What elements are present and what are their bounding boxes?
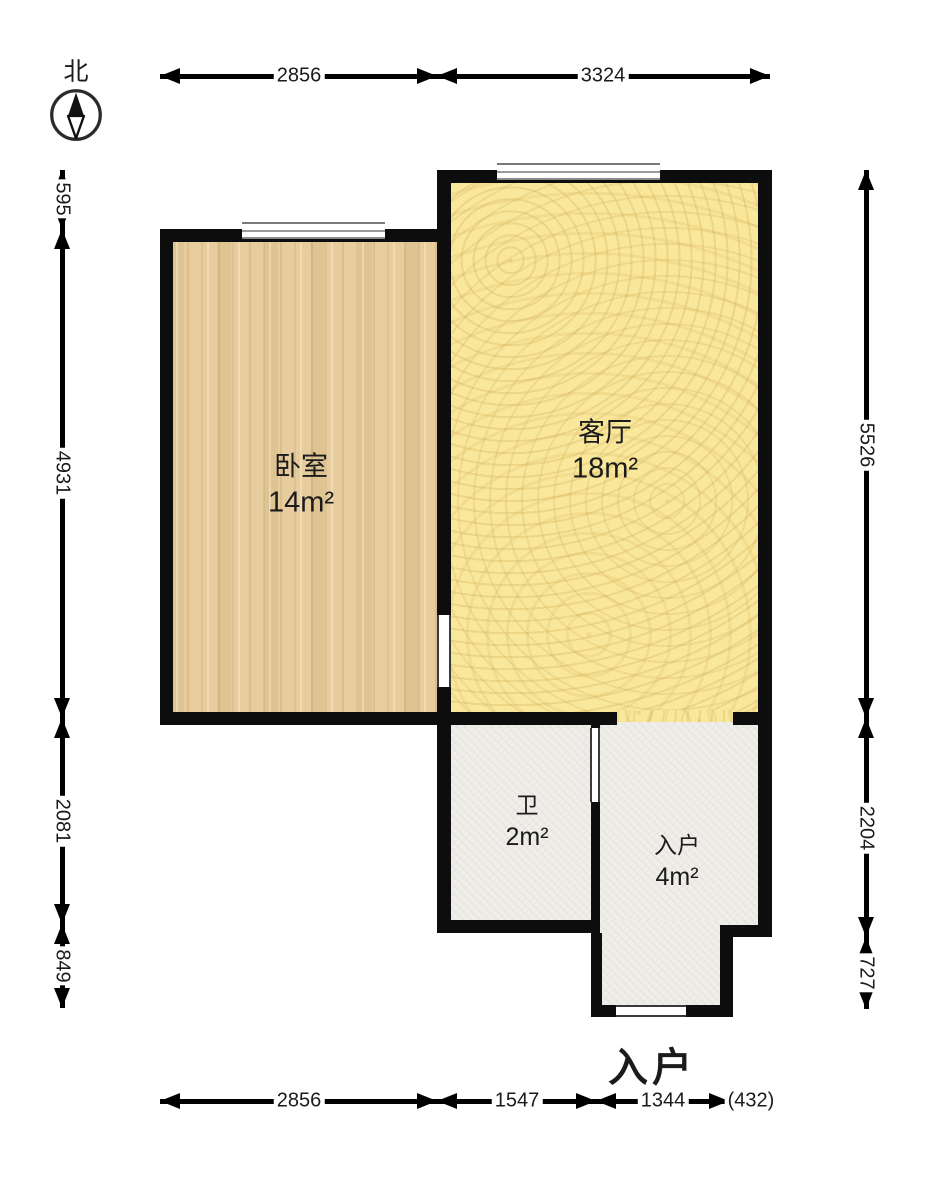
entry-room-name: 入户 (654, 831, 700, 861)
bathroom-door-opening (590, 728, 600, 802)
bedroom-door-opening (437, 615, 451, 687)
bedroom-label: 卧室 14m² (268, 450, 334, 523)
dim-tick (54, 229, 70, 249)
dim-tick (596, 1093, 616, 1109)
bathroom-name: 卫 (505, 791, 548, 821)
north-label: 北 (63, 52, 88, 88)
dim-tick (858, 718, 874, 738)
wall-right-outer (758, 170, 772, 937)
bedroom-name: 卧室 (268, 450, 334, 485)
dim-tick (54, 698, 70, 718)
dim-arrow-up (858, 170, 874, 190)
dim-arrow-right (750, 68, 770, 84)
dim-tick (858, 917, 874, 937)
dimension-label: 1547 (492, 1090, 543, 1113)
entry-floor-upper (597, 722, 761, 928)
dimension-label: 2204 (855, 803, 878, 854)
dim-tick (437, 68, 457, 84)
dim-tick (858, 698, 874, 718)
dimension-label: 3324 (578, 65, 629, 88)
entry-floor-lower (597, 920, 723, 1008)
entry-room-area: 4m² (654, 861, 700, 894)
bathroom-label: 卫 2m² (505, 791, 548, 853)
wall-bathroom-left (437, 712, 451, 933)
dim-tick (437, 1093, 457, 1109)
dim-tick (417, 1093, 437, 1109)
bathroom-area: 2m² (505, 821, 548, 854)
dimension-label: 849 (51, 946, 74, 985)
wall-bedroom-bottom (160, 712, 450, 725)
wall-bedroom-left (160, 229, 173, 725)
entry-room-label: 入户 4m² (654, 831, 700, 893)
bedroom-window (242, 222, 385, 239)
dim-tick (417, 68, 437, 84)
bedroom-area: 14m² (268, 485, 334, 523)
wall-entry-notch-vertical (720, 925, 733, 1017)
wall-living-bottom-right (733, 712, 772, 725)
dimension-label: 2856 (274, 1090, 325, 1113)
dimension-label: 4931 (51, 448, 74, 499)
dim-tick (54, 904, 70, 924)
wall-living-bottom-left (437, 712, 617, 725)
wall-bathroom-bottom (437, 920, 600, 933)
dim-line (60, 170, 65, 1008)
dimension-label: 2856 (274, 65, 325, 88)
dimension-label: 595 (51, 179, 74, 218)
dim-arrow-left (160, 68, 180, 84)
dim-tick (54, 718, 70, 738)
dim-arrow-left (160, 1093, 180, 1109)
entrance-label: 入户 (608, 1035, 696, 1093)
dimension-label: 5526 (855, 420, 878, 471)
dim-arrow-down (54, 988, 70, 1008)
living-room-area: 18m² (572, 451, 638, 489)
dimension-label: 2081 (51, 796, 74, 847)
living-room-window (497, 163, 660, 180)
living-room-label: 客厅 18m² (572, 416, 638, 489)
living-room-name: 客厅 (572, 416, 638, 451)
dim-line (160, 74, 770, 79)
dimension-label: 727 (855, 953, 878, 992)
dim-tick (54, 924, 70, 944)
floor-plan: 北 卧室 14m² 客厅 18m² 卫 2m² (0, 0, 930, 1186)
dimension-label: 1344 (638, 1090, 689, 1113)
dim-line (864, 170, 869, 1009)
compass-icon (48, 87, 104, 148)
dim-tick (576, 1093, 596, 1109)
dimension-label: (432) (725, 1090, 778, 1113)
entrance-door-opening (616, 1005, 686, 1017)
